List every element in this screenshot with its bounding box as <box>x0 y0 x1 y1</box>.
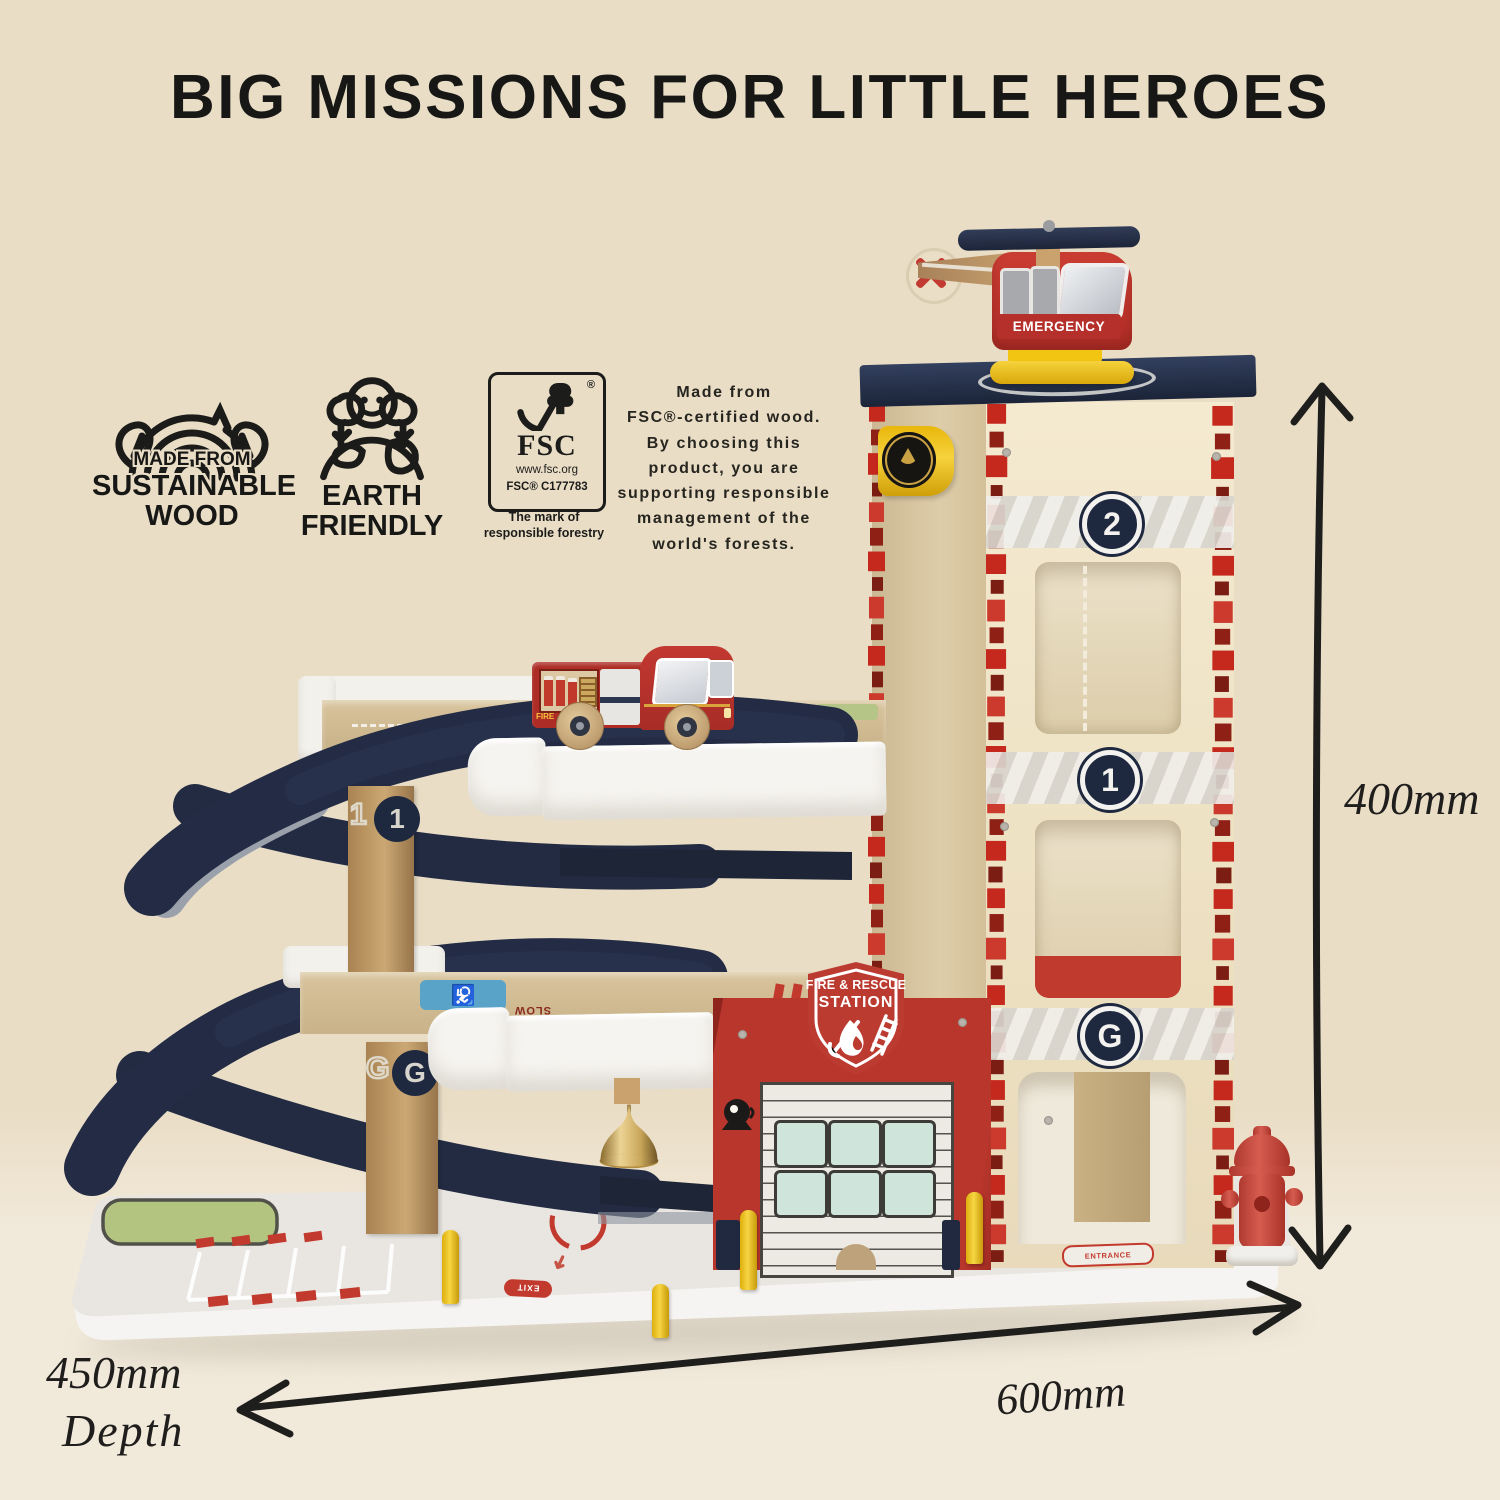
depth-dimension-label: Depth <box>62 1404 184 1457</box>
height-arrow-line <box>1316 390 1322 1260</box>
width-arrow-line <box>246 1307 1294 1408</box>
product-infographic: BIG MISSIONS FOR LITTLE HEROES MADE FROM… <box>0 0 1500 1500</box>
dimension-arrows <box>0 0 1500 1500</box>
depth-dimension-value: 450mm <box>46 1346 181 1399</box>
height-dimension-label: 400mm <box>1344 772 1479 825</box>
width-dimension-label: 600mm <box>994 1366 1127 1426</box>
